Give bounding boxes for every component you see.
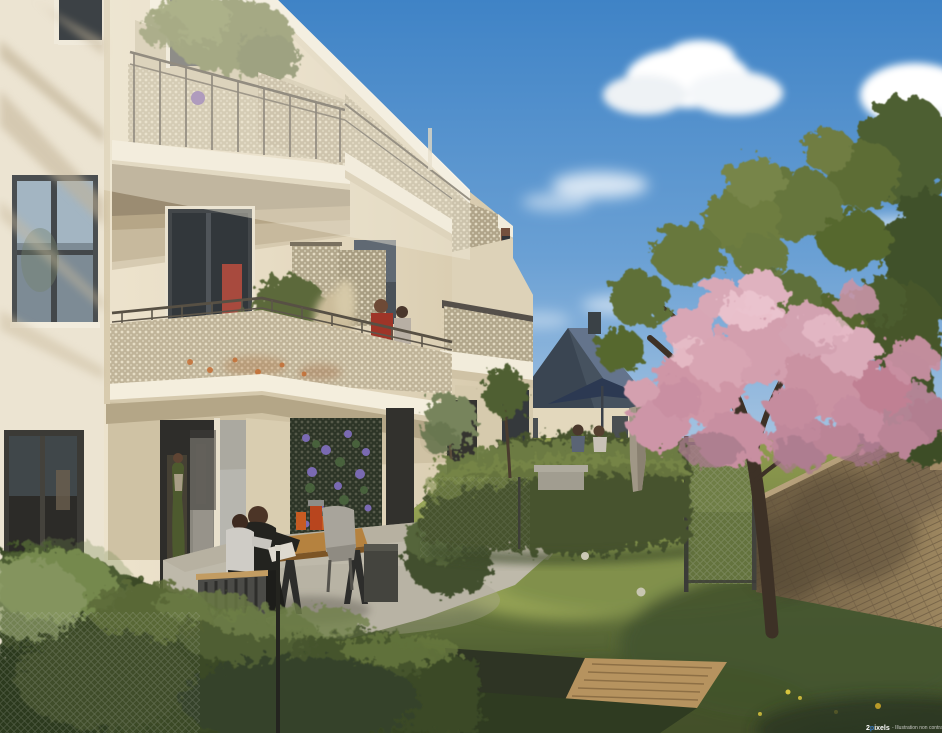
svg-text:- Illustration non contractuel: - Illustration non contractuelle [892, 725, 942, 731]
svg-text:2pixels: 2pixels [866, 725, 890, 732]
